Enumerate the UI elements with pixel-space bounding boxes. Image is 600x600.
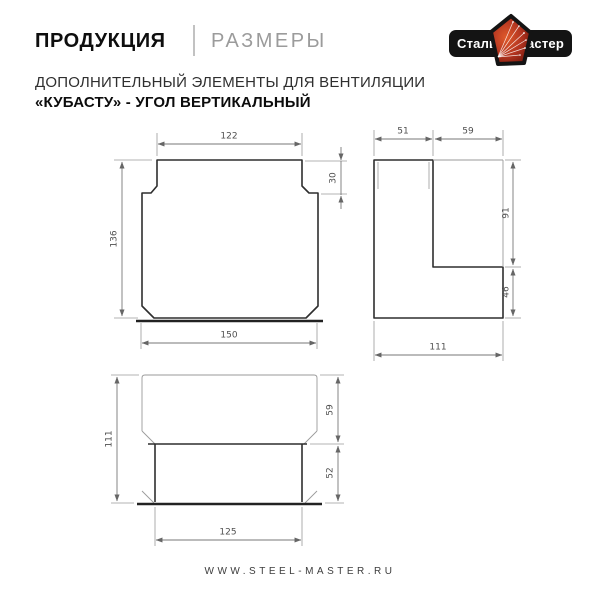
front-view-drawing: [114, 133, 347, 349]
dim-top-left-height: 111: [106, 430, 115, 447]
spec-sheet-page: ПРОДУКЦИЯ РАЗМЕРЫ Сталь Мастер ДО: [0, 0, 600, 600]
dim-front-top-width: 122: [220, 133, 237, 142]
dim-front-step-height: 30: [330, 172, 339, 183]
spark-badge-icon: [483, 9, 541, 71]
dim-front-height: 136: [111, 230, 120, 247]
website-url: WWW.STEEL-MASTER.RU: [0, 566, 600, 577]
dim-top-right-upper-height: 59: [327, 404, 336, 415]
dim-top-right-lower-height: 52: [327, 467, 336, 478]
dim-side-right-lower-height: 46: [503, 286, 512, 297]
dim-side-top-left-width: 51: [397, 128, 408, 137]
dim-side-bottom-width: 111: [429, 344, 446, 353]
technical-drawings: [0, 0, 600, 600]
dim-side-top-right-width: 59: [462, 128, 473, 137]
dim-top-bottom-width: 125: [219, 529, 236, 538]
top-view-drawing: [111, 375, 344, 546]
side-view-drawing: [374, 130, 521, 361]
dim-front-bottom-width: 150: [220, 332, 237, 341]
dim-side-right-upper-height: 91: [503, 207, 512, 218]
